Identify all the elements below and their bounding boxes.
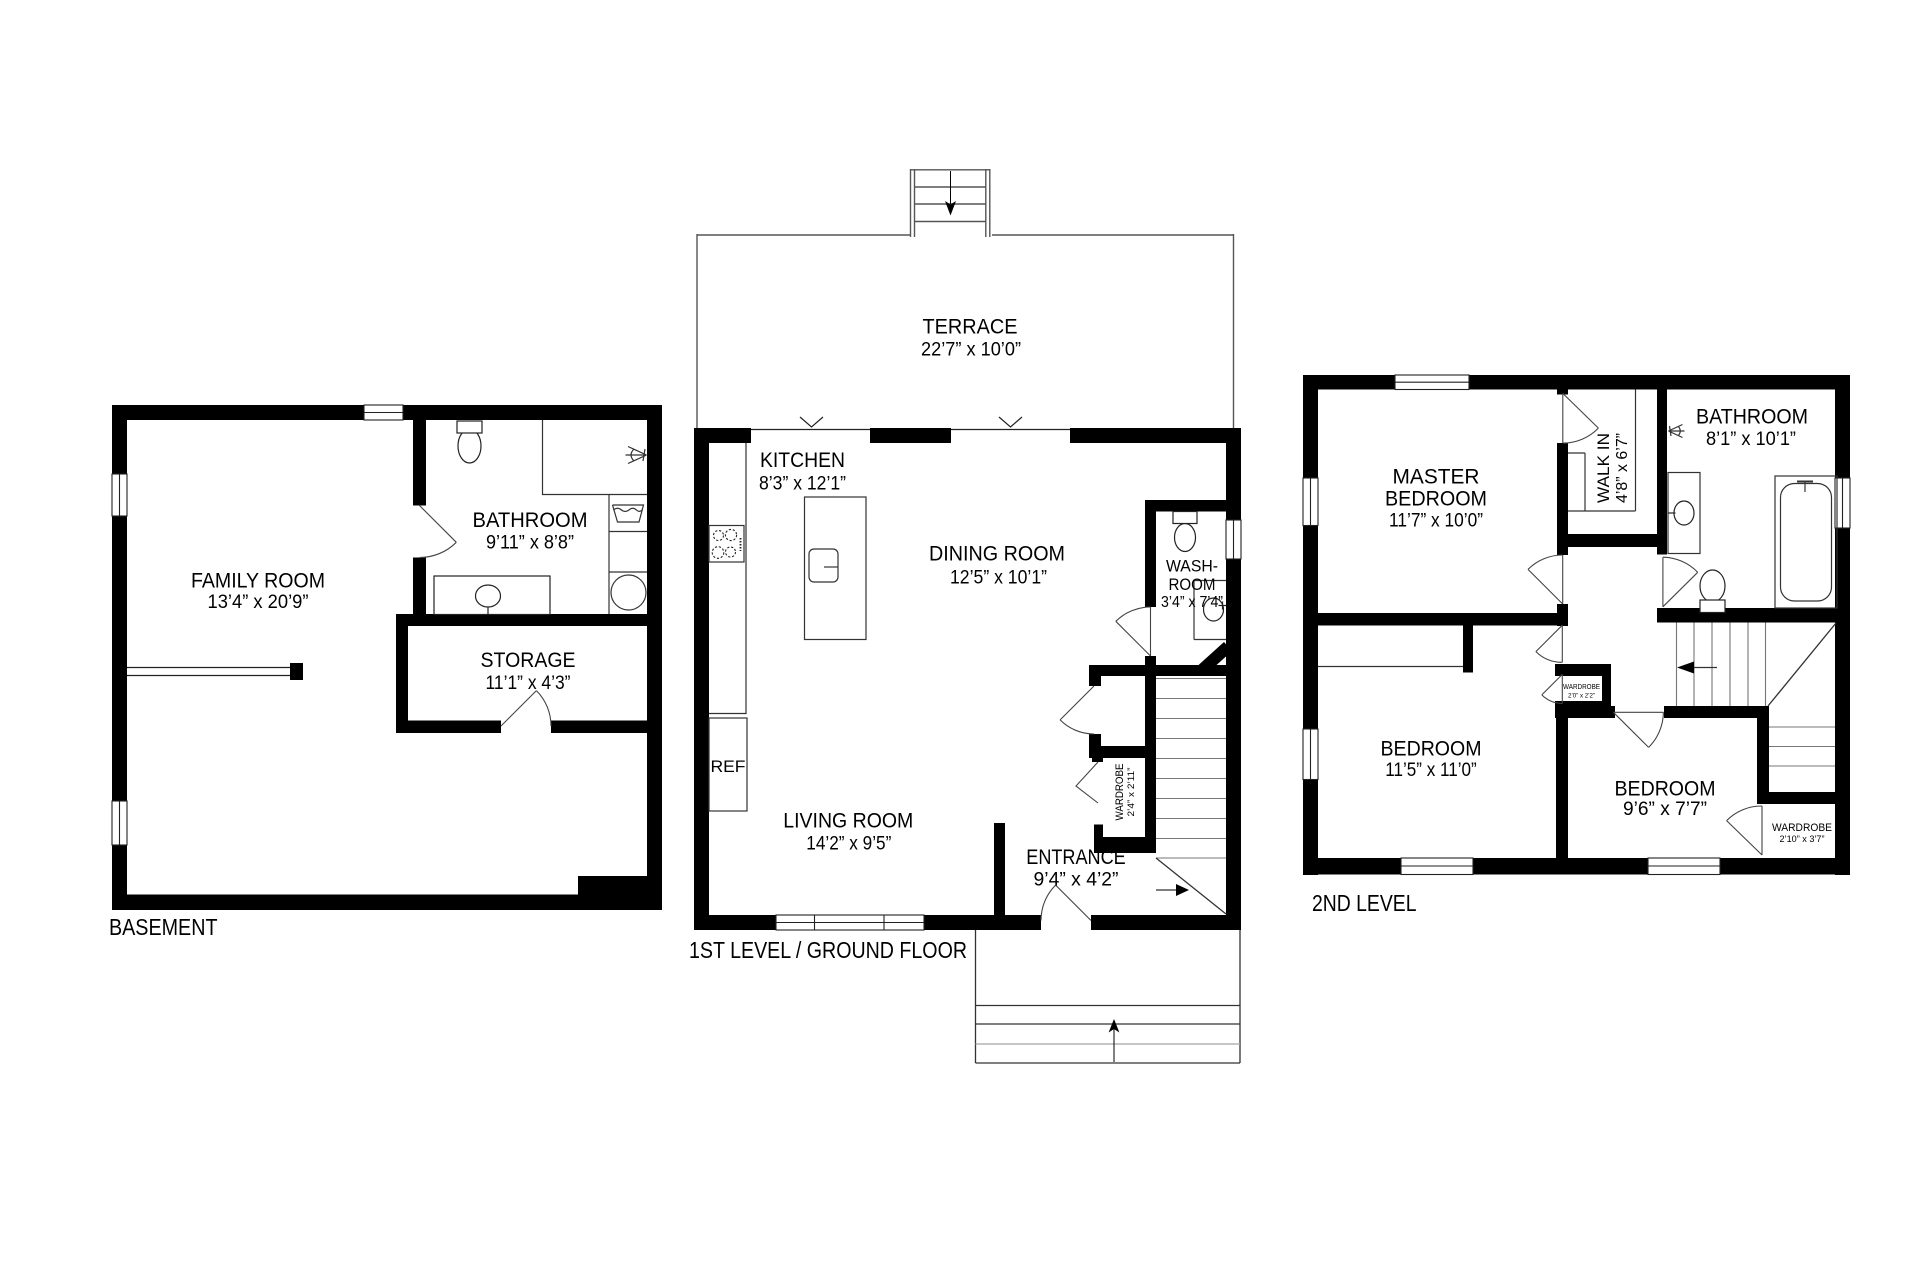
svg-text:LIVING ROOM: LIVING ROOM xyxy=(783,810,913,833)
svg-text:2’0” x 2’2”: 2’0” x 2’2” xyxy=(1568,693,1595,700)
svg-text:14’2” x 9’5”: 14’2” x 9’5” xyxy=(806,834,891,855)
svg-text:12’5” x 10’1”: 12’5” x 10’1” xyxy=(950,568,1047,589)
svg-text:KITCHEN: KITCHEN xyxy=(760,449,845,472)
svg-text:9’4” x 4’2”: 9’4” x 4’2” xyxy=(1034,870,1119,891)
svg-text:WARDROBE: WARDROBE xyxy=(1772,822,1832,834)
svg-text:WALK IN: WALK IN xyxy=(1594,433,1613,503)
svg-text:9’11” x 8’8”: 9’11” x 8’8” xyxy=(486,533,574,554)
svg-text:WARDROBE: WARDROBE xyxy=(1563,682,1600,691)
svg-text:4’8” x 6’7”: 4’8” x 6’7” xyxy=(1614,433,1631,503)
svg-text:ENTRANCE: ENTRANCE xyxy=(1026,846,1126,869)
svg-text:1ST LEVEL / GROUND FLOOR: 1ST LEVEL / GROUND FLOOR xyxy=(689,937,967,963)
svg-text:11’1” x 4’3”: 11’1” x 4’3” xyxy=(486,673,571,694)
svg-text:2’4” x 2’11”: 2’4” x 2’11” xyxy=(1126,768,1137,817)
svg-text:REF: REF xyxy=(711,757,746,776)
svg-text:WASH-: WASH- xyxy=(1166,557,1218,576)
svg-text:13’4” x 20’9”: 13’4” x 20’9” xyxy=(208,592,309,613)
svg-text:8’3” x 12’1”: 8’3” x 12’1” xyxy=(759,474,846,495)
svg-text:BATHROOM: BATHROOM xyxy=(473,509,588,532)
svg-text:BEDROOM: BEDROOM xyxy=(1615,778,1716,801)
svg-text:11’5” x 11’0”: 11’5” x 11’0” xyxy=(1385,760,1477,781)
svg-text:3’4” x 7’4”: 3’4” x 7’4” xyxy=(1161,594,1223,611)
svg-text:BASEMENT: BASEMENT xyxy=(109,914,218,940)
svg-text:FAMILY ROOM: FAMILY ROOM xyxy=(191,570,325,593)
svg-text:TERRACE: TERRACE xyxy=(923,316,1018,339)
svg-text:2’10” x 3’7”: 2’10” x 3’7” xyxy=(1780,834,1825,845)
svg-text:BEDROOM: BEDROOM xyxy=(1381,738,1482,761)
svg-text:ROOM: ROOM xyxy=(1169,575,1216,594)
svg-text:11’7” x 10’0”: 11’7” x 10’0” xyxy=(1389,511,1483,532)
svg-text:BEDROOM: BEDROOM xyxy=(1385,488,1487,511)
svg-text:9’6” x 7’7”: 9’6” x 7’7” xyxy=(1623,799,1707,820)
svg-text:WARDROBE: WARDROBE xyxy=(1114,764,1126,821)
svg-text:BATHROOM: BATHROOM xyxy=(1696,406,1808,429)
svg-text:MASTER: MASTER xyxy=(1393,466,1480,489)
svg-text:DINING ROOM: DINING ROOM xyxy=(929,543,1065,566)
svg-text:STORAGE: STORAGE xyxy=(481,649,576,672)
svg-text:8’1” x 10’1”: 8’1” x 10’1” xyxy=(1706,429,1796,450)
svg-text:22’7” x 10’0”: 22’7” x 10’0” xyxy=(921,340,1021,361)
svg-text:2ND LEVEL: 2ND LEVEL xyxy=(1312,890,1417,916)
